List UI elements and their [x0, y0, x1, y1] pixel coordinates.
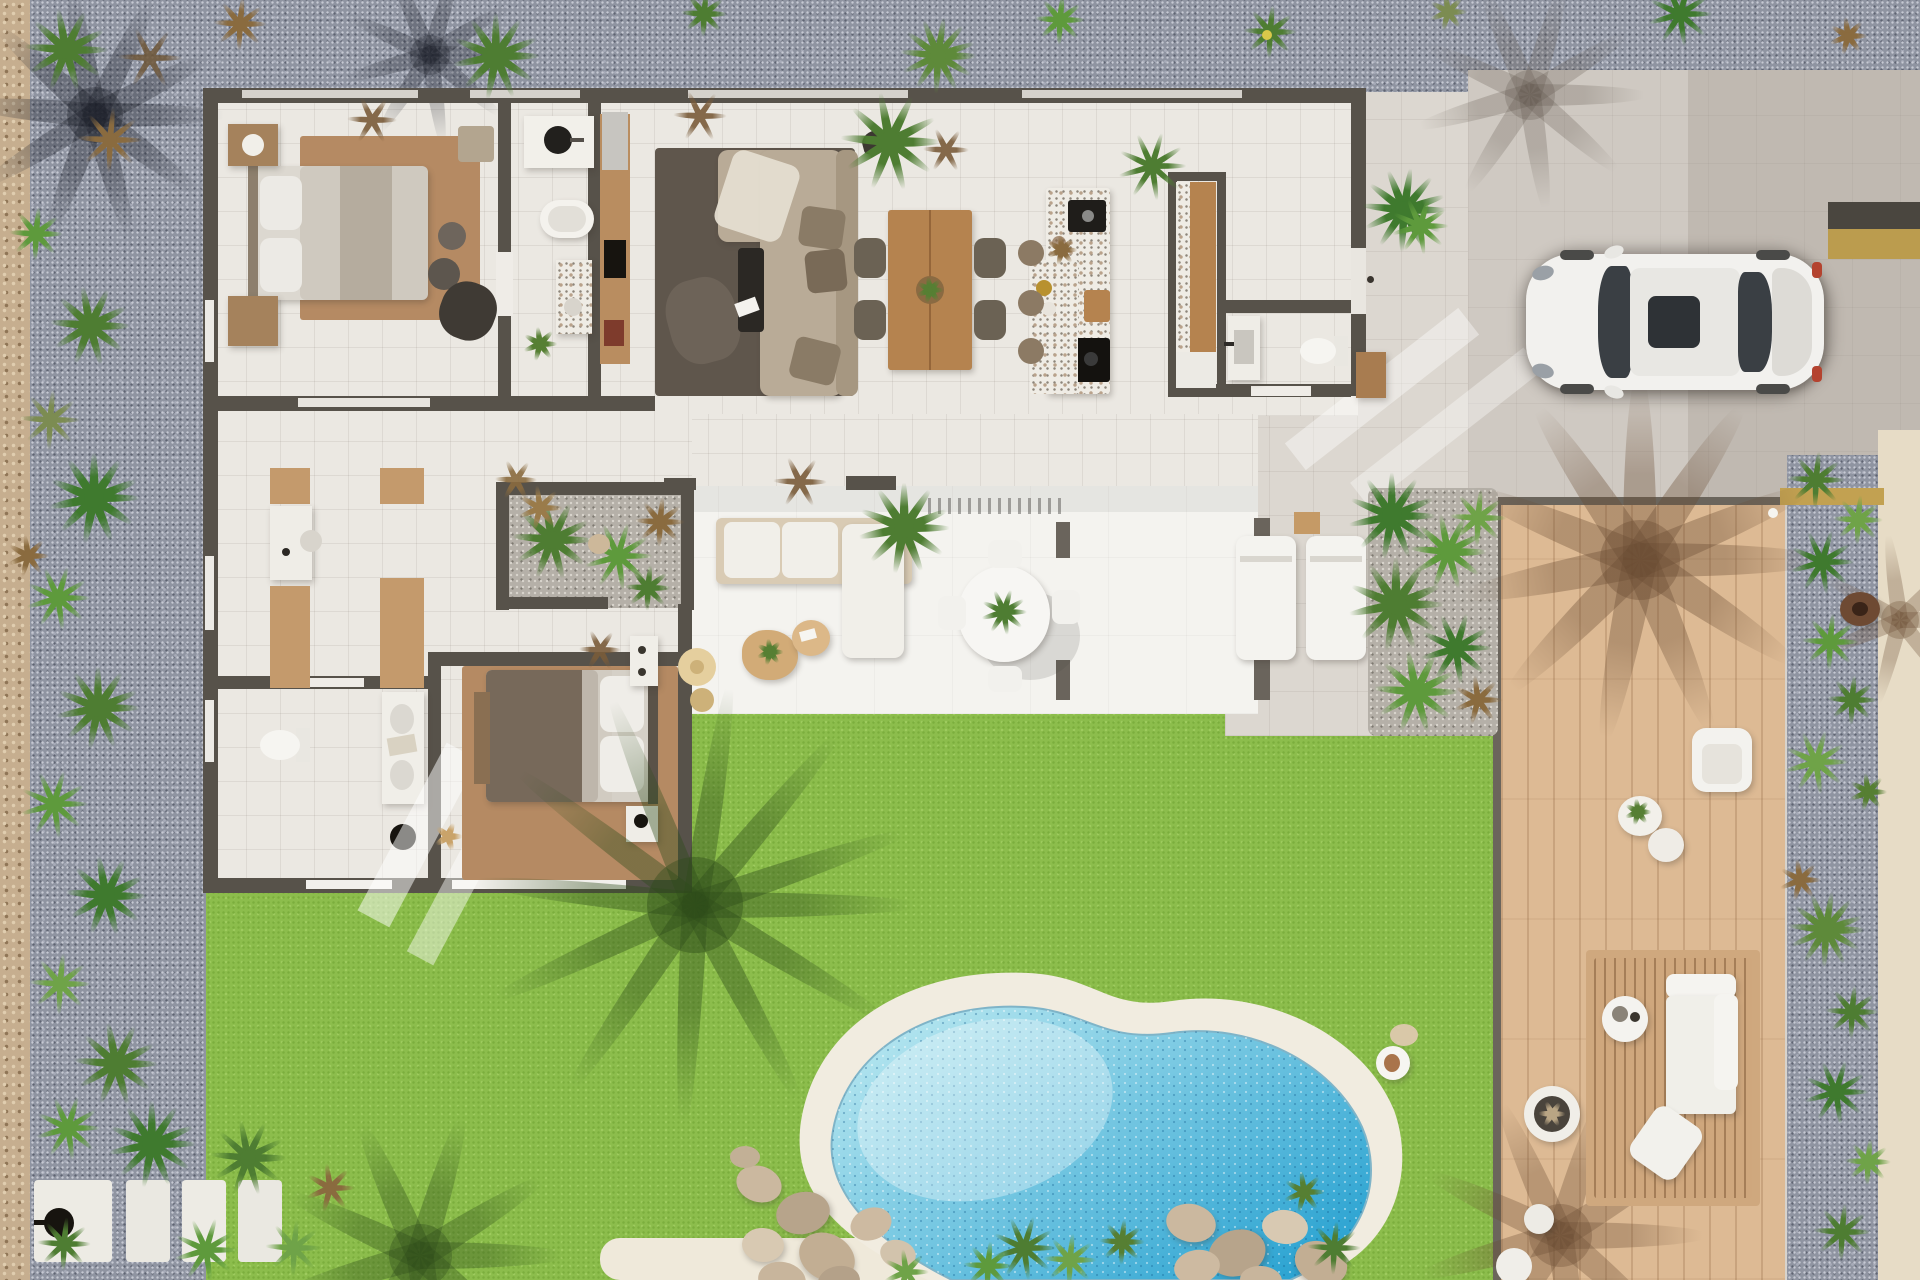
nightstand-bottom [228, 296, 278, 346]
bedroom2-bench [474, 692, 490, 784]
window-lintel-1 [242, 90, 418, 98]
dining-chair-1 [854, 238, 886, 278]
dining-chair-2 [854, 300, 886, 340]
left-plant-12-center [53, 977, 66, 990]
outdoor-sink-dot-2 [638, 668, 646, 676]
right-plant-8-center [1846, 1006, 1858, 1018]
bath1-stone-sink [564, 298, 582, 316]
bath1-tub-inner [548, 206, 586, 232]
kitchen-sink-dot [1082, 210, 1094, 222]
left-plant-5-center [43, 413, 56, 426]
guestbath-vanity-inset [1234, 330, 1254, 364]
left-plant-4-center [81, 317, 99, 335]
bedroom1-pillow-2 [260, 238, 302, 292]
car-wheel-fl [1560, 250, 1594, 260]
bath1-sink-black [544, 126, 572, 154]
door-bedroom1 [496, 252, 513, 316]
rock-border-left [0, 0, 30, 1280]
fire-bowl-sticks-center [1549, 1111, 1555, 1117]
wardrobe-c [270, 586, 310, 688]
guestbath-door [1251, 386, 1311, 396]
palm-shadow-lawn-big-center [647, 857, 744, 954]
bedroom1-pillow-1 [260, 176, 302, 230]
lounger-side-table [1294, 512, 1320, 534]
bar-stool-2 [1018, 290, 1044, 316]
deck-side-plant-center [1635, 809, 1641, 815]
lounger-2-pillow-line [1310, 556, 1362, 562]
top-plant-4-center [699, 9, 709, 19]
pergola-slat-shadow [928, 498, 1062, 514]
wall-garland-2-center [694, 110, 706, 122]
right-plant-10-center [1863, 1157, 1873, 1167]
sofa-cushion-1 [797, 205, 846, 251]
bar-stool-1 [1018, 240, 1044, 266]
wall-right [1351, 88, 1366, 396]
hall-plant-center [1144, 158, 1159, 173]
sun-lounger-2 [1306, 536, 1366, 660]
tray-bowl-1 [1612, 1006, 1628, 1022]
bar-stool-3 [1018, 338, 1044, 364]
slab-4 [238, 1180, 282, 1262]
gate-brass-strip [1828, 229, 1920, 259]
palm-shadow-deck-1-center [1600, 520, 1680, 600]
patio-chair-w [938, 596, 966, 630]
outdoor-sink-dot-1 [638, 646, 646, 654]
car-sunroof [1648, 296, 1700, 348]
top-flower-yellow [1262, 30, 1272, 40]
bedroom1-pouf-1 [438, 222, 466, 250]
front-door-handle [1367, 276, 1374, 283]
front-door [1351, 248, 1366, 314]
wall-left [203, 88, 218, 893]
gate-dark-bar [1828, 202, 1920, 229]
pool-tuft-6-center [1328, 1242, 1340, 1254]
car-taillight-bottom [1812, 366, 1822, 382]
lounger-1-pillow-line [1240, 556, 1292, 562]
patio-chair-n [988, 540, 1022, 568]
deck-side-table-2 [1648, 828, 1684, 862]
deck-stool-cylinder [1524, 1204, 1554, 1234]
car-wheel-bl [1560, 384, 1594, 394]
bath1-plant-center [536, 340, 544, 348]
outdoor-sofa-cushion-2 [782, 522, 838, 578]
slab-2 [126, 1180, 170, 1262]
wardrobe-a [270, 468, 310, 504]
bl-plant-6-center [58, 1238, 70, 1250]
bath2-sink-1 [390, 704, 414, 734]
window-left-3 [205, 700, 214, 762]
dining-centerpiece-plant-center [927, 287, 933, 293]
right-plant-dry-center [1795, 875, 1804, 884]
patio-pillar-1 [1056, 522, 1070, 558]
wardrobe-b [380, 468, 424, 504]
kitchen-island-side [1030, 260, 1078, 394]
guestbath-faucet [1224, 342, 1234, 346]
round-table-plant-center [999, 607, 1009, 617]
car-windshield [1598, 266, 1632, 378]
courtyard-plant-1-center [543, 531, 561, 549]
courtyard-wall-bottom [496, 597, 608, 609]
top-plant-3-center [234, 18, 246, 30]
patio-pillar-4 [1254, 660, 1270, 700]
courtyard-wall-right [681, 482, 694, 610]
left-plant-8-center [23, 551, 32, 560]
patio-wall-stub-1 [664, 478, 696, 490]
sofa-cushion-2 [804, 248, 848, 294]
car-wheel-fr [1756, 250, 1790, 260]
window-lintel-4 [1022, 90, 1242, 98]
outdoor-sofa-cushion-1 [724, 522, 780, 578]
bedroom1-blanket-fold [340, 166, 392, 300]
left-plant-3-center [30, 228, 42, 240]
sun-lounger-1 [1236, 536, 1296, 660]
pool-tuft-7-center [901, 1267, 911, 1277]
pantry-counter-terrazzo [1176, 182, 1190, 354]
gravel-pot-hole [1852, 602, 1868, 616]
grill-handle [34, 1220, 46, 1225]
patio-wall-stub-2 [846, 476, 896, 490]
bath2-toilet-bowl [260, 730, 300, 760]
deck-corner-pot [1496, 1248, 1532, 1280]
top-plant-1-center [486, 46, 505, 65]
red-cabinet-item [604, 320, 624, 346]
living-palm-plant-center [879, 131, 901, 153]
fridge [602, 112, 628, 170]
bedroom1-bench [458, 126, 494, 162]
bush-4-center [1448, 640, 1464, 656]
bedroom1-headboard [248, 164, 258, 302]
outdoor-chaise [842, 524, 904, 658]
deck-light-dot [1768, 508, 1778, 518]
courtyard-plant-3-center [643, 583, 653, 593]
tray-bowl-2 [1630, 1012, 1640, 1022]
bush-1-center [1382, 506, 1401, 525]
courtyard-pot [588, 534, 610, 554]
pool-tuft-5-center [1299, 1187, 1308, 1196]
window-lintel-3 [688, 90, 908, 98]
pool-tuft-2-center [1064, 1254, 1076, 1266]
patio-chair-s [988, 666, 1022, 692]
palm-shadow-lawn-small-center [389, 1224, 452, 1280]
patio-table-plant-center [767, 649, 773, 655]
island-white-bowl [1042, 302, 1056, 316]
wall-garland-3-center [941, 145, 951, 155]
palm-shadow-court-center [1505, 70, 1555, 120]
tv-screen [604, 240, 626, 278]
palm-shadow-sidewalk-center [1881, 601, 1919, 639]
car-rear-deck [1772, 268, 1812, 376]
wall-garland-5-center [511, 475, 520, 484]
left-plant-6-center [84, 488, 104, 508]
bl-plant-1-center [142, 1134, 161, 1153]
villa-floor-plan-rendering [0, 0, 1920, 1280]
desk-chair [300, 530, 322, 552]
bath1-faucet [570, 138, 584, 142]
wall-bedroom1-divider [498, 102, 511, 396]
beach-basket [690, 688, 714, 712]
dining-chair-3 [974, 238, 1006, 278]
courtyard-plant-dry-2-center [535, 503, 545, 513]
car-taillight-top [1812, 262, 1822, 278]
pantry-wall-right [1217, 172, 1226, 396]
glass-door-mid [298, 398, 430, 407]
window-left-2 [205, 556, 214, 630]
deck-armchair-seat [1702, 744, 1742, 784]
wall-garland-4-center [794, 476, 806, 488]
guestbath-wall-top [1226, 300, 1351, 313]
car-rear-window [1738, 272, 1772, 372]
dining-chair-4 [974, 300, 1006, 340]
wardrobe-d [380, 578, 424, 688]
wall-garland-6-center [595, 645, 604, 654]
sidewalk-right [1878, 430, 1920, 1280]
daybed-armrest [1714, 994, 1738, 1090]
coffee-table-black [738, 248, 764, 332]
desk-decor-dot [282, 548, 290, 556]
car-wheel-br [1756, 384, 1790, 394]
nightstand-vase [242, 134, 264, 156]
pantry-cabinet-white [1176, 352, 1216, 388]
patio-chair-e [1052, 590, 1080, 624]
left-plant-10-center [46, 796, 61, 811]
entry-console [1356, 352, 1386, 398]
patio-palm-plant-center [894, 518, 914, 538]
guestbath-toilet-bowl [1300, 338, 1336, 364]
courtyard-plant-2-center [610, 548, 625, 563]
sun-hat-crown [690, 660, 704, 674]
floor-living-extension [640, 414, 1258, 488]
bath1-stone-vanity [556, 260, 592, 334]
pantry-counter-wood [1190, 182, 1216, 354]
cutting-board [1084, 290, 1110, 322]
pool-tuft-3-center [1117, 1237, 1127, 1247]
rock-small [730, 1146, 760, 1168]
window-left-1 [205, 300, 214, 362]
palm-shadow-gravel-2-center [410, 35, 450, 75]
bush-3-center [1386, 594, 1407, 615]
outdoor-sink-counter [630, 636, 658, 686]
courtyard-wall-left [496, 482, 509, 610]
left-plant-11-center [97, 887, 115, 905]
bath2-sink-2 [390, 760, 414, 790]
cooktop-burner [1084, 352, 1098, 366]
guestbath-toilet-tank [1334, 336, 1348, 366]
